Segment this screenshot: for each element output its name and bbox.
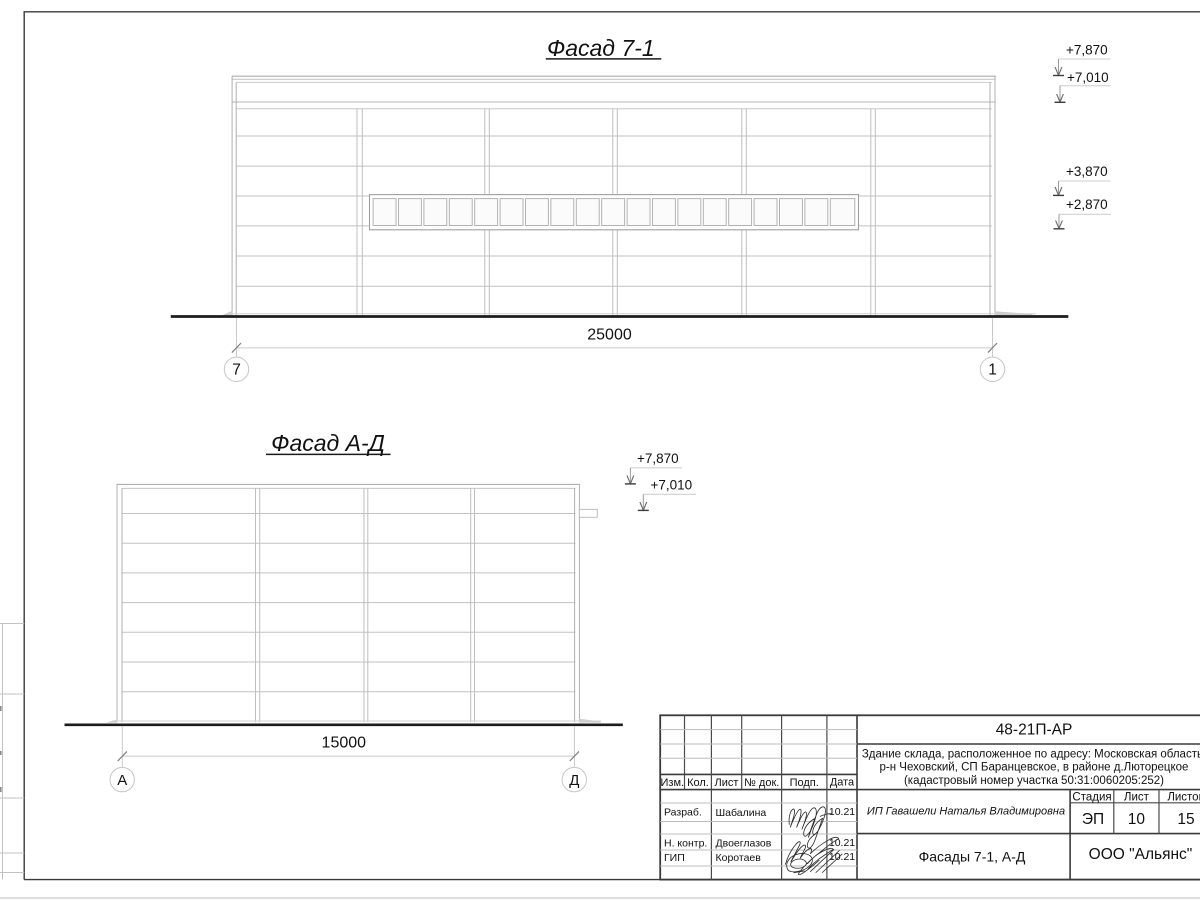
svg-text:Двоеглазов: Двоеглазов	[716, 838, 772, 850]
svg-text:+3,870: +3,870	[1066, 164, 1108, 179]
svg-text:Кол.: Кол.	[687, 777, 709, 789]
svg-text:15: 15	[1177, 811, 1194, 828]
svg-text:Изм.: Изм.	[661, 777, 685, 789]
svg-text:Разраб.: Разраб.	[664, 807, 702, 819]
svg-text:Фасады 7-1, А-Д: Фасады 7-1, А-Д	[919, 849, 1026, 865]
svg-text:Стадия: Стадия	[1072, 791, 1111, 803]
svg-text:+7,010: +7,010	[651, 477, 693, 492]
svg-text:10.21: 10.21	[829, 837, 855, 849]
svg-text:+7,870: +7,870	[1066, 43, 1108, 58]
svg-text:+2,870: +2,870	[1066, 197, 1108, 212]
svg-text:48-21П-АР: 48-21П-АР	[996, 722, 1073, 739]
svg-text:Н. контр.: Н. контр.	[664, 838, 707, 850]
svg-text:25000: 25000	[587, 327, 632, 344]
svg-text:Лист: Лист	[1124, 791, 1150, 803]
svg-text:Д: Д	[569, 772, 579, 789]
svg-text:ИП Гавашели Наталья Владимиров: ИП Гавашели Наталья Владимировна	[867, 806, 1065, 818]
svg-text:+7,870: +7,870	[637, 451, 679, 466]
svg-text:Фасад 7-1: Фасад 7-1	[547, 35, 655, 61]
svg-text:1: 1	[988, 362, 997, 379]
svg-text:10: 10	[1128, 811, 1146, 828]
svg-text:Фасад А-Д: Фасад А-Д	[271, 430, 385, 456]
svg-text:№ док.: № док.	[744, 777, 779, 789]
svg-text:(кадастровый номер участка 50:: (кадастровый номер участка 50:31:0060205…	[904, 775, 1164, 787]
svg-text:10.21: 10.21	[829, 806, 855, 818]
svg-text:Листов: Листов	[1167, 791, 1200, 803]
svg-text:р-н Чеховский, СП Баранцевское: р-н Чеховский, СП Баранцевское, в районе…	[880, 762, 1189, 774]
svg-text:ЭП: ЭП	[1082, 811, 1104, 828]
svg-text:+7,010: +7,010	[1067, 70, 1109, 85]
svg-text:ООО "Альянс": ООО "Альянс"	[1089, 846, 1193, 863]
svg-text:15000: 15000	[322, 734, 367, 751]
svg-text:Коротаев: Коротаев	[716, 852, 762, 864]
svg-text:Подп.: Подп.	[790, 777, 819, 789]
svg-text:Здание склада, расположенное п: Здание склада, расположенное по адресу: …	[862, 748, 1200, 760]
svg-text:Шабалина: Шабалина	[716, 807, 767, 819]
svg-text:Лист: Лист	[715, 777, 739, 789]
svg-text:7: 7	[232, 362, 241, 379]
svg-text:Дата: Дата	[830, 777, 855, 789]
svg-text:А: А	[117, 772, 127, 789]
svg-text:ГИП: ГИП	[664, 852, 685, 864]
